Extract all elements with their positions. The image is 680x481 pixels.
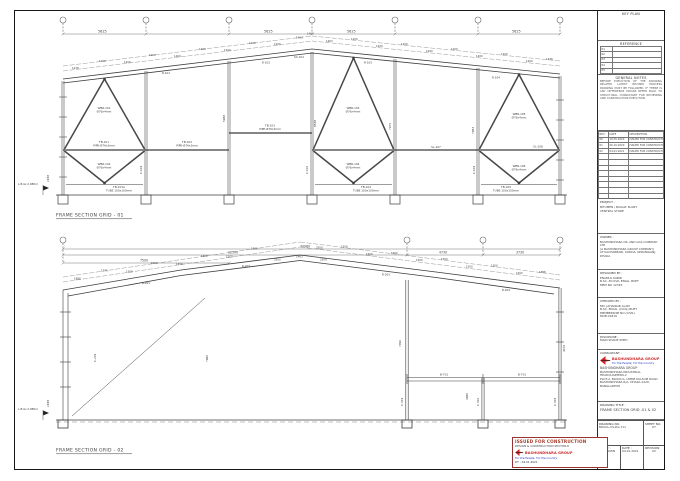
designed-by-label: DESIGNED BY :	[600, 271, 662, 275]
svg-text:1463: 1463	[296, 36, 303, 40]
owner-line: AT KACHARBARI, KODDA, KERANIGANJ, DHAKA	[600, 251, 662, 258]
bashundhara-logo-icon	[600, 356, 611, 365]
tie-beams-top	[63, 132, 560, 184]
construction-stamp: ISSUED FOR CONSTRUCTION DESIGN & CONSTRU…	[512, 437, 608, 468]
svg-text:C-303: C-303	[553, 397, 557, 406]
consultant-section: CONSULTANT : BASHUNDHARA GROUP For the P…	[598, 350, 664, 402]
mezzanine-beams	[407, 374, 560, 384]
consultant-tagline: For the People, For the Country	[612, 361, 660, 365]
base-footings-bottom	[56, 420, 567, 428]
dim-label: 5625	[98, 30, 107, 34]
svg-text:1200: 1200	[526, 59, 533, 63]
drawing-area: 5625 5625 5625 5625 14381200 12001200 12…	[16, 12, 598, 467]
svg-text:1500: 1500	[176, 262, 183, 266]
svg-text:R-101: R-101	[162, 71, 170, 75]
owner-label: OWNER :	[600, 235, 662, 239]
designed-by-line: MEM NO 12345	[600, 284, 662, 288]
svg-text:1500: 1500	[366, 252, 373, 256]
drawing-title-section: DRAWING TITLE : FRAME SECTION GRID -01 &…	[598, 402, 664, 420]
owner-section: OWNER : BASHUNDHARA OIL AND GAS COMPANY …	[598, 234, 664, 270]
svg-text:2500: 2500	[316, 246, 323, 250]
svg-text:R-104: R-104	[492, 76, 500, 80]
dimension-labels-bottom: 30960 22500 4730 3730 7500	[140, 245, 524, 263]
revision-value: 02	[645, 450, 663, 454]
sheet-border-frame: 5625 5625 5625 5625 14381200 12001200 12…	[14, 10, 665, 470]
svg-text:Ø76x4mm: Ø76x4mm	[512, 115, 527, 120]
svg-text:1500: 1500	[491, 264, 498, 268]
svg-text:PIPE-Ø76x3mm: PIPE-Ø76x3mm	[176, 143, 198, 148]
svg-text:R-103: R-103	[364, 61, 372, 65]
svg-text:1463: 1463	[307, 32, 314, 36]
svg-text:4730: 4730	[439, 251, 447, 255]
bottom-frame-title: FRAME SECTION GRID - 02	[56, 448, 124, 454]
svg-text:1438: 1438	[72, 66, 79, 70]
top-frame-drawing: 5625 5625 5625 5625 14381200 12001200 12…	[18, 17, 567, 219]
general-notes-section: GENERAL NOTES BEFORE EXECUTION OF THE DR…	[598, 75, 664, 131]
ground-level-marker-top: L.B.Gr.2.980m	[18, 182, 49, 195]
roof-chords-top	[63, 49, 560, 83]
columns-bottom	[60, 280, 564, 420]
general-notes-body: BEFORE EXECUTION OF THE DRAWING RELATED …	[600, 80, 662, 100]
purlin-dim-chain-top	[63, 36, 560, 71]
grid-bubbles-bottom	[60, 237, 563, 263]
svg-text:1200: 1200	[174, 54, 181, 58]
svg-text:5988: 5988	[222, 115, 226, 122]
dim-label: 5625	[347, 30, 356, 34]
svg-text:1888: 1888	[74, 277, 81, 281]
svg-text:1500: 1500	[416, 258, 423, 262]
svg-text:1200: 1200	[199, 47, 206, 51]
rafter-bottom	[63, 255, 560, 296]
svg-text:C-101: C-101	[139, 165, 143, 174]
svg-text:C-102: C-102	[305, 165, 309, 174]
revision-table: REV DATE DESCRIPTION 0010.05.2020ISSUED …	[598, 131, 664, 199]
svg-text:TUBE 100x100mm: TUBE 100x100mm	[492, 189, 519, 193]
grid-bubbles-top	[60, 17, 563, 34]
svg-text:R-102: R-102	[262, 61, 270, 65]
columns-top	[59, 52, 564, 195]
svg-text:1500: 1500	[466, 265, 473, 269]
rotated-dims-bottom: C-201 7980 7090 C-301 3980 C-302 C-303 4…	[46, 340, 566, 407]
svg-text:7500: 7500	[140, 259, 148, 263]
svg-text:1200: 1200	[224, 48, 231, 52]
svg-text:1500: 1500	[201, 254, 208, 258]
svg-text:C-301: C-301	[400, 397, 404, 406]
drawing-sheet: 5625 5625 5625 5625 14381200 12001200 12…	[0, 0, 680, 481]
svg-text:Ø76x4mm: Ø76x4mm	[346, 165, 361, 170]
project-label: PROJECT :	[600, 200, 662, 204]
svg-text:1200: 1200	[249, 41, 256, 45]
title-block: KEY PLAN REFERENCE R1 R2 R3 R4 R5 GENERA…	[597, 11, 664, 469]
svg-text:4078: 4078	[562, 345, 566, 352]
discipline-section: DISCIPLINE : MAIN SHADE SHED	[598, 334, 664, 350]
project-section: PROJECT : BITUMEN / BASALT PLANT CENTRAL…	[598, 199, 664, 234]
svg-text:1500: 1500	[391, 251, 398, 255]
svg-text:1500: 1500	[226, 255, 233, 259]
svg-text:1770: 1770	[101, 269, 108, 273]
stamp-subtitle: DESIGN & CONSTRUCTION SECTOR-8	[515, 444, 605, 448]
svg-text:R-204: R-204	[502, 288, 510, 292]
svg-text:1500: 1500	[151, 261, 158, 265]
drawing-title-value: FRAME SECTION GRID -01 & 02	[600, 409, 662, 413]
svg-text:3980: 3980	[465, 393, 469, 400]
drawing-title-label: DRAWING TITLE :	[600, 403, 662, 407]
svg-text:1200: 1200	[401, 42, 408, 46]
designed-by-section: DESIGNED BY : ENAMUL KABIR B.SC. IN CIVI…	[598, 270, 664, 298]
svg-text:1500: 1500	[341, 245, 348, 249]
reference-table: R1 R2 R3 R4 R5	[600, 46, 662, 74]
svg-text:SL-108: SL-108	[533, 145, 543, 149]
checked-by-section: CHECKED BY : MD. JAHANGIR ALAM B.SC. ENG…	[598, 298, 664, 334]
svg-text:Ø76x4mm: Ø76x4mm	[512, 167, 527, 172]
gusset-nodes-top	[103, 57, 520, 184]
consultant-address: BASHUNDHARA R/A, DHAKA-1229, BANGLADESH	[600, 381, 662, 388]
key-plan-section: KEY PLAN	[598, 11, 664, 41]
project-sub: CENTRAL STORE	[600, 210, 662, 214]
svg-text:1200: 1200	[124, 60, 131, 64]
ground-level-marker-bottom: L.B.Gr.2.980m	[18, 407, 49, 420]
svg-text:7983: 7983	[471, 127, 475, 134]
key-plan-header: KEY PLAN	[600, 12, 662, 16]
member-labels-bottom: R-201 R-202 R-203 R-204 B-701 B-701	[142, 264, 526, 377]
svg-text:1438: 1438	[546, 57, 553, 61]
svg-text:1500: 1500	[516, 271, 523, 275]
svg-text:R-203: R-203	[382, 273, 390, 277]
bashundhara-logo-icon	[515, 449, 524, 456]
svg-text:1200: 1200	[376, 44, 383, 48]
svg-text:2438: 2438	[46, 175, 50, 182]
svg-text:1500: 1500	[251, 247, 258, 251]
svg-text:1200: 1200	[149, 53, 156, 57]
svg-text:7090: 7090	[398, 340, 402, 347]
svg-text:1888: 1888	[539, 270, 546, 274]
svg-text:7975: 7975	[388, 123, 392, 130]
ground-level-label: L.B.Gr.2.980m	[18, 407, 38, 411]
dim-label: 5625	[512, 30, 521, 34]
stamp-brand-row: BASHUNDHARA GROUP	[515, 449, 605, 456]
svg-text:Ø76x4mm: Ø76x4mm	[346, 109, 361, 114]
drawing-no-value: BOGCL-CS-DG-711	[599, 426, 642, 430]
svg-text:1500: 1500	[126, 270, 133, 274]
purlin-dim-numbers-top: 14381200 12001200 12001200 12001200 1200…	[72, 32, 553, 71]
revision-section: REV DATE DESCRIPTION 0010.05.2020ISSUED …	[598, 131, 664, 199]
svg-text:B-701: B-701	[440, 373, 448, 377]
sheet-no-value: 07	[645, 426, 663, 430]
base-footings-top	[56, 195, 567, 204]
svg-text:Ø76x4mm: Ø76x4mm	[97, 165, 112, 170]
svg-text:R-202: R-202	[242, 264, 250, 268]
svg-text:C-302: C-302	[476, 397, 480, 406]
checked-by-label: CHECKED BY :	[600, 299, 662, 303]
top-frame-title: FRAME SECTION GRID - 01	[56, 213, 124, 219]
date-value: 04.01.2021	[622, 450, 642, 454]
reference-section: REFERENCE R1 R2 R3 R4 R5	[598, 41, 664, 75]
reference-row-label: R5	[601, 68, 613, 73]
svg-text:C-201: C-201	[93, 353, 97, 362]
consultant-brand: BASHUNDHARA GROUP	[612, 357, 660, 361]
svg-text:Ø76x4mm: Ø76x4mm	[97, 109, 112, 114]
svg-text:PIPE-Ø76x3mm: PIPE-Ø76x3mm	[259, 126, 281, 131]
stamp-date: DT : 04.01.2021	[515, 460, 605, 464]
svg-text:1500: 1500	[441, 257, 448, 261]
checked-by-line: MOB 01819	[600, 315, 662, 319]
svg-text:1200: 1200	[476, 54, 483, 58]
brace-diamonds-top	[65, 58, 559, 183]
svg-text:B-701: B-701	[518, 373, 526, 377]
rotated-dims-top: 5988 8538 7975 7983 2438 C-101 C-102 C-1…	[46, 115, 476, 182]
svg-text:1200: 1200	[274, 42, 281, 46]
dim-label: 5625	[264, 30, 273, 34]
svg-text:TUBE 100x100mm: TUBE 100x100mm	[105, 189, 132, 193]
svg-text:TUBE 100x100mm: TUBE 100x100mm	[352, 189, 379, 193]
svg-text:1200: 1200	[501, 52, 508, 56]
svg-text:7980: 7980	[205, 355, 209, 362]
svg-text:SL-107: SL-107	[431, 145, 441, 149]
bottom-frame-drawing: 30960 22500 4730 3730 7500 18881770 1500…	[18, 237, 567, 454]
svg-text:C-103: C-103	[472, 165, 476, 174]
stamp-brand: BASHUNDHARA GROUP	[525, 451, 573, 455]
discipline-value: MAIN SHADE SHED	[600, 339, 662, 343]
svg-text:1200: 1200	[451, 47, 458, 51]
svg-text:R-201: R-201	[142, 281, 150, 285]
svg-text:1463: 1463	[326, 39, 333, 43]
svg-text:1200: 1200	[426, 49, 433, 53]
svg-text:1200: 1200	[99, 59, 106, 63]
svg-text:2438: 2438	[46, 400, 50, 407]
svg-text:8538: 8538	[313, 120, 317, 127]
svg-text:SC-101: SC-101	[294, 55, 304, 59]
svg-text:1200: 1200	[351, 37, 358, 41]
svg-text:3730: 3730	[516, 251, 524, 255]
ground-level-label: L.B.Gr.2.980m	[18, 182, 38, 186]
consultant-label: CONSULTANT :	[600, 351, 662, 355]
svg-text:PIPE-Ø76x3mm: PIPE-Ø76x3mm	[93, 143, 115, 148]
